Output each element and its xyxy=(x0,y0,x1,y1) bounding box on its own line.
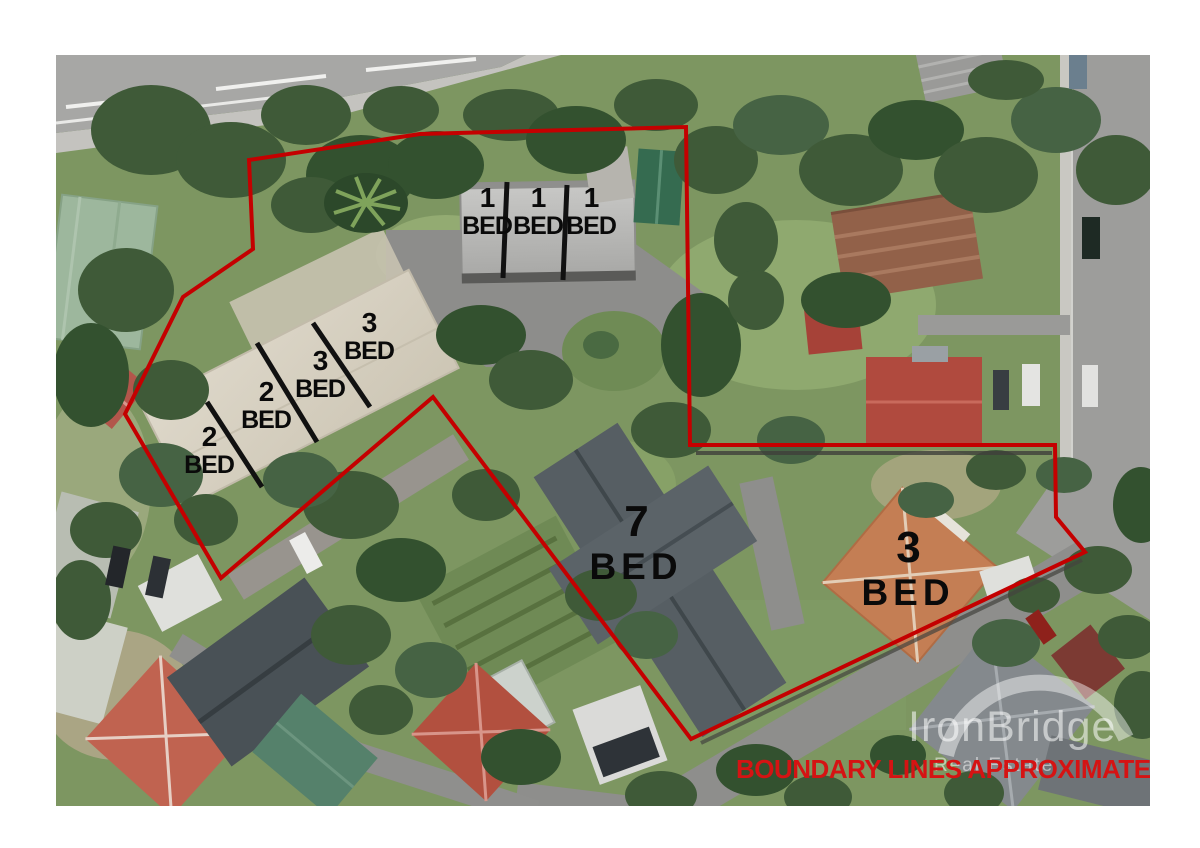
unit-bed-word: BED xyxy=(241,407,291,433)
unit-bed-count: 3 xyxy=(295,346,345,376)
unit-label-2bed-b: 2 BED xyxy=(241,377,291,433)
unit-bed-word: BED xyxy=(295,376,345,402)
watermark-brand: IronBridge xyxy=(908,703,1116,752)
unit-bed-count: 2 xyxy=(184,422,234,452)
unit-bed-word: BED xyxy=(566,213,616,239)
unit-bed-count: 3 xyxy=(861,525,954,571)
unit-label-3bed-a: 3 BED xyxy=(295,346,345,402)
page-background: 1 BED 1 BED 1 BED 2 BED 2 BED 3 BED 3 BE… xyxy=(0,0,1200,848)
unit-label-1bed-b: 1 BED xyxy=(513,183,563,239)
unit-bed-word: BED xyxy=(589,545,682,589)
unit-bed-word: BED xyxy=(861,571,954,615)
unit-bed-word: BED xyxy=(344,338,394,364)
unit-label-1bed-a: 1 BED xyxy=(462,183,512,239)
palm-tree xyxy=(324,173,408,233)
boundary-disclaimer-text: BOUNDARY LINES APPROXIMATE xyxy=(736,754,1150,785)
unit-bed-count: 2 xyxy=(241,377,291,407)
aerial-photo: 1 BED 1 BED 1 BED 2 BED 2 BED 3 BED 3 BE… xyxy=(56,55,1150,806)
unit-label-3bed-house: 3 BED xyxy=(861,525,954,615)
unit-label-3bed-b: 3 BED xyxy=(344,308,394,364)
unit-bed-count: 7 xyxy=(589,499,682,545)
unit-bed-word: BED xyxy=(513,213,563,239)
unit-bed-word: BED xyxy=(184,452,234,478)
unit-bed-count: 1 xyxy=(462,183,512,213)
unit-bed-count: 1 xyxy=(513,183,563,213)
building-red-house-right xyxy=(866,346,982,447)
unit-label-2bed-a: 2 BED xyxy=(184,422,234,478)
unit-label-7bed: 7 BED xyxy=(589,499,682,589)
unit-bed-count: 3 xyxy=(344,308,394,338)
unit-bed-count: 1 xyxy=(566,183,616,213)
unit-bed-word: BED xyxy=(462,213,512,239)
unit-label-1bed-c: 1 BED xyxy=(566,183,616,239)
